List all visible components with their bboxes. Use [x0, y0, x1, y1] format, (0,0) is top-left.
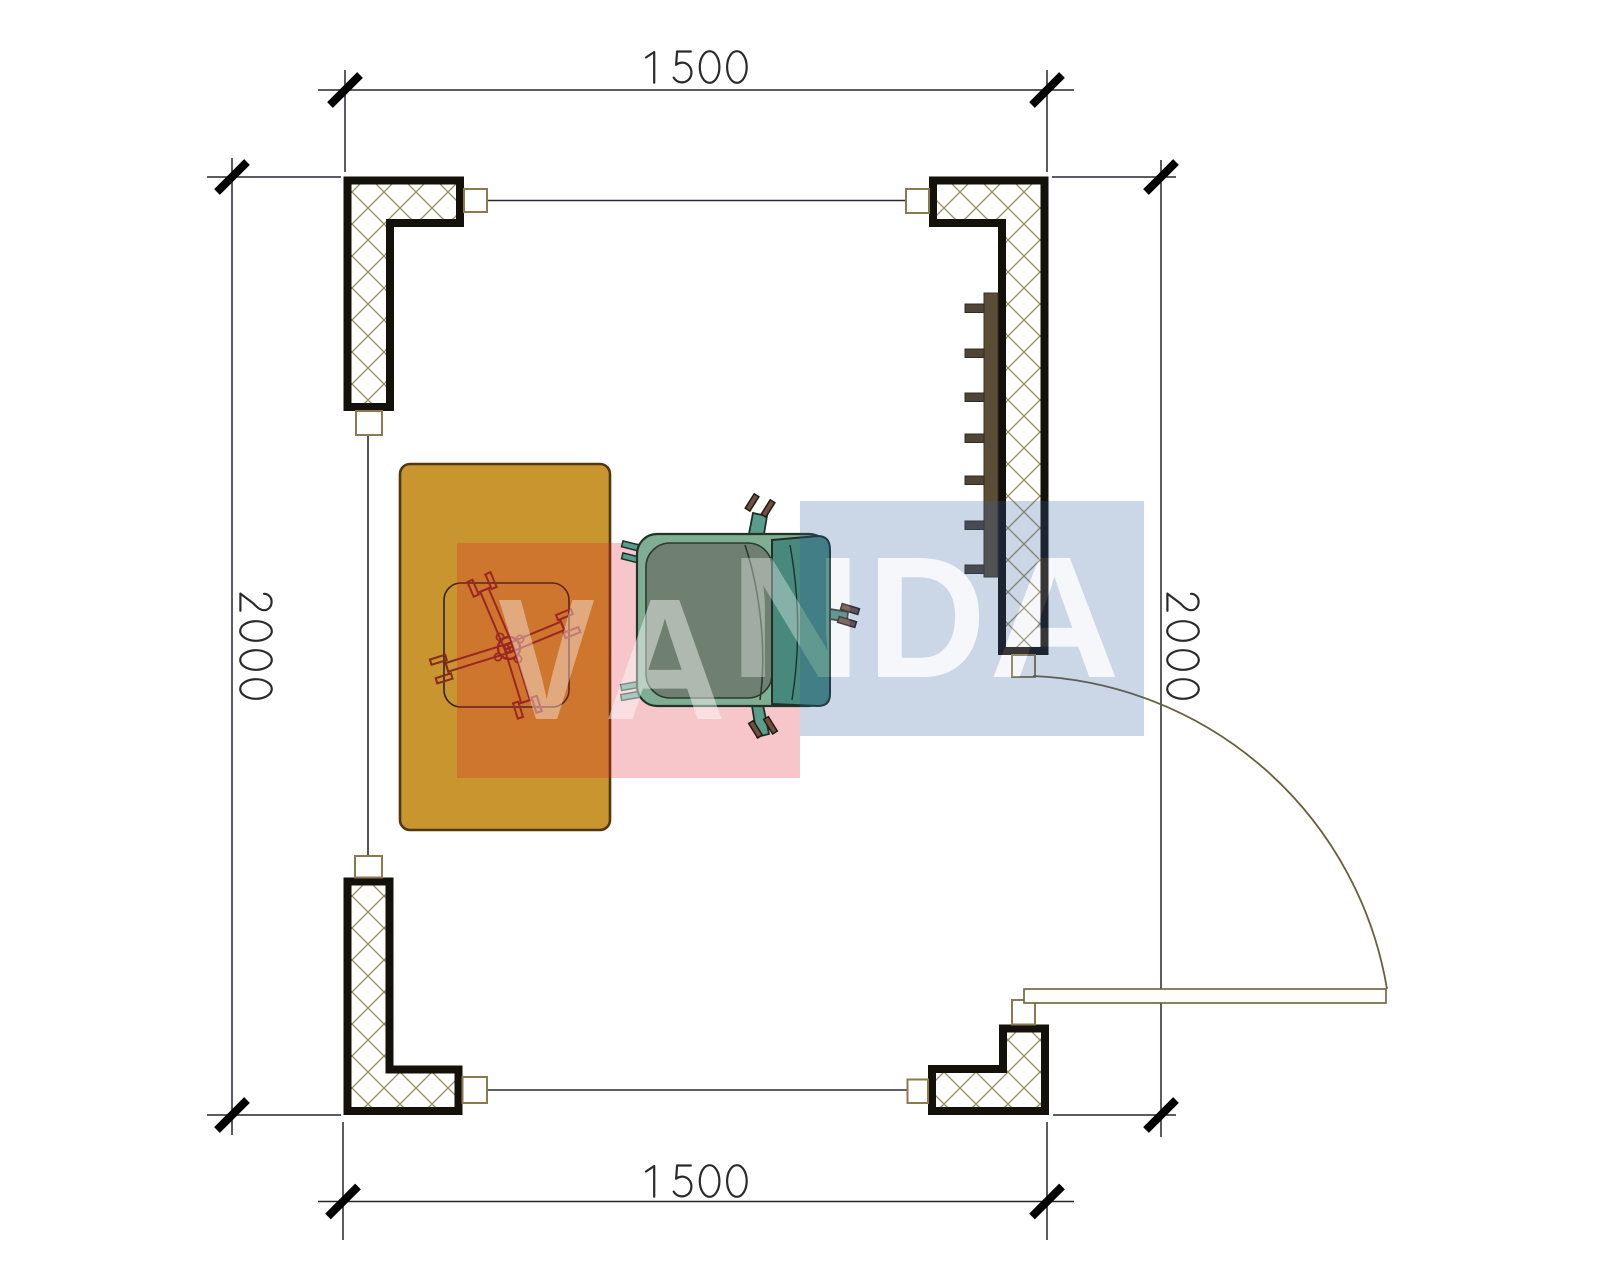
svg-text:D: D — [867, 520, 986, 714]
svg-text:A: A — [989, 520, 1120, 714]
svg-text:A: A — [604, 562, 726, 756]
svg-text:V: V — [498, 562, 595, 756]
